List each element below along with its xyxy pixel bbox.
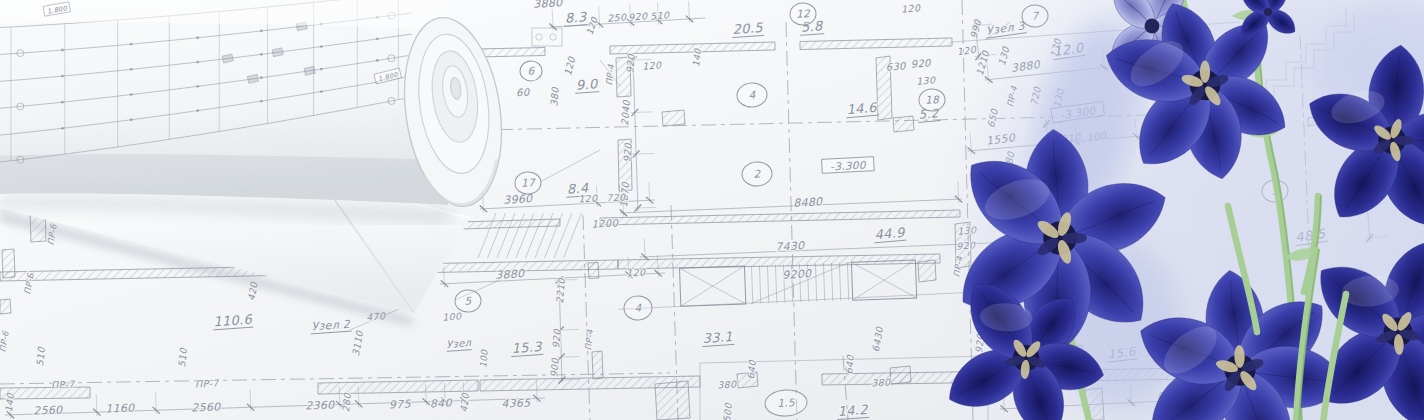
- svg-text:720: 720: [606, 191, 626, 203]
- dim-label: 975: [389, 398, 412, 412]
- svg-text:640: 640: [843, 354, 856, 375]
- svg-text:920: 920: [624, 53, 636, 73]
- svg-text:280: 280: [340, 392, 353, 413]
- dim-label: 510: [650, 9, 670, 21]
- dim-label: 640: [843, 354, 856, 375]
- svg-text:510: 510: [650, 9, 670, 21]
- dim-label: 920: [628, 10, 648, 22]
- dim-label: 7430: [775, 239, 806, 254]
- dim-label: 380: [717, 378, 737, 390]
- svg-text:2210: 2210: [554, 277, 567, 304]
- dim-label: ПР-7: [51, 378, 76, 390]
- svg-text:9200: 9200: [782, 267, 813, 282]
- svg-text:17: 17: [521, 176, 537, 189]
- svg-text:15.3: 15.3: [511, 339, 544, 356]
- dim-label: 3880: [533, 0, 564, 11]
- svg-text:14.2: 14.2: [837, 402, 869, 419]
- svg-text:920: 920: [628, 10, 648, 22]
- svg-text:33.1: 33.1: [702, 329, 733, 346]
- svg-text:900: 900: [548, 357, 560, 377]
- svg-text:100: 100: [478, 348, 489, 368]
- dim-label: 640: [745, 359, 758, 380]
- svg-text:ПР-4: ПР-4: [583, 328, 595, 350]
- svg-text:640: 640: [745, 359, 758, 380]
- dim-label: 2560: [33, 403, 63, 417]
- svg-text:3880: 3880: [495, 267, 526, 282]
- dim-label: 630: [885, 60, 907, 72]
- svg-text:7430: 7430: [775, 239, 806, 254]
- dim-label: 9200: [782, 267, 813, 282]
- blueprint-flowers-illustration: 38808.312025092051020.55.81209.060380120…: [0, 0, 1424, 420]
- rolled-blueprint: 1.8001.800: [0, 0, 513, 222]
- dim-label: 140: [3, 392, 16, 413]
- dim-label: 100: [478, 348, 489, 368]
- svg-text:2560: 2560: [191, 400, 221, 414]
- dim-label: 2360: [305, 398, 335, 412]
- dim-label: 1160: [105, 401, 135, 415]
- dim-label: 60: [516, 87, 531, 99]
- svg-text:2360: 2360: [305, 398, 335, 412]
- svg-text:120: 120: [626, 266, 646, 278]
- hero-banner: 38808.312025092051020.55.81209.060380120…: [0, 0, 1424, 420]
- svg-text:975: 975: [389, 398, 412, 412]
- svg-text:4365: 4365: [501, 396, 531, 410]
- svg-text:44.9: 44.9: [874, 225, 907, 243]
- dim-label: 380: [548, 86, 560, 106]
- dim-label: ПР-4: [583, 328, 595, 350]
- svg-text:60: 60: [516, 87, 531, 99]
- dim-label: 8.3: [563, 9, 588, 26]
- svg-text:20.5: 20.5: [732, 20, 764, 37]
- dim-label: 280: [340, 392, 353, 413]
- svg-text:420: 420: [458, 392, 471, 413]
- svg-text:Узел 2: Узел 2: [311, 318, 351, 334]
- svg-text:920: 920: [550, 328, 562, 348]
- svg-text:130: 130: [916, 74, 936, 86]
- svg-text:2040: 2040: [619, 99, 632, 126]
- svg-text:510: 510: [176, 347, 189, 368]
- dim-label: 44.9: [873, 225, 907, 243]
- svg-text:110.6: 110.6: [213, 312, 254, 330]
- dim-label: 500: [721, 402, 734, 420]
- svg-text:1200: 1200: [591, 217, 620, 229]
- svg-text:4: 4: [748, 88, 756, 100]
- svg-text:3880: 3880: [533, 0, 564, 11]
- svg-text:140: 140: [3, 392, 16, 413]
- svg-text:12: 12: [796, 7, 812, 20]
- dim-label: 140: [691, 47, 703, 67]
- svg-text:120: 120: [578, 192, 598, 204]
- dim-label: 14.2: [836, 402, 869, 420]
- svg-text:510: 510: [34, 346, 47, 367]
- svg-text:-3.300: -3.300: [830, 159, 867, 173]
- dim-label: 510: [176, 347, 189, 368]
- dim-label: 100: [442, 310, 462, 322]
- svg-text:380: 380: [717, 378, 737, 390]
- svg-text:920: 920: [910, 57, 932, 69]
- svg-text:14.6: 14.6: [846, 100, 879, 118]
- dim-label: 4365: [501, 396, 531, 410]
- svg-text:380: 380: [548, 86, 560, 106]
- dim-label: 2210: [554, 277, 567, 304]
- dim-label: 2560: [191, 400, 221, 414]
- dim-label: 720: [606, 191, 626, 203]
- svg-text:140: 140: [691, 47, 703, 67]
- svg-text:120: 120: [901, 2, 922, 15]
- svg-text:ПР-7: ПР-7: [51, 378, 76, 390]
- dim-label: 920: [621, 142, 633, 162]
- dim-label: ПР-7: [195, 377, 220, 389]
- svg-text:8.3: 8.3: [564, 9, 588, 26]
- dim-label: 3880: [495, 267, 526, 282]
- dim-label: 510: [34, 346, 47, 367]
- dim-label: 15.3: [510, 339, 544, 357]
- svg-text:120: 120: [642, 59, 662, 71]
- dim-label: 120: [626, 266, 646, 278]
- dim-label: 250: [607, 11, 627, 23]
- dim-label: 120: [901, 2, 922, 15]
- dim-label: 420: [458, 392, 471, 413]
- dim-label: 920: [550, 328, 562, 348]
- svg-text:2560: 2560: [33, 403, 63, 417]
- svg-text:840: 840: [430, 397, 453, 411]
- dim-label: 840: [430, 397, 453, 411]
- svg-text:920: 920: [621, 142, 633, 162]
- dim-label: 130: [916, 74, 936, 86]
- dim-label: 1200: [591, 217, 620, 229]
- dim-label: 900: [548, 357, 560, 377]
- dim-label: 33.1: [701, 329, 734, 347]
- dim-label: Узел 2: [310, 318, 352, 334]
- dim-label: 8480: [793, 195, 824, 210]
- svg-text:630: 630: [885, 60, 907, 72]
- dim-label: 20.5: [731, 20, 764, 38]
- svg-text:250: 250: [607, 11, 627, 23]
- svg-text:4: 4: [634, 301, 642, 313]
- dim-label: 14.6: [845, 100, 879, 118]
- svg-text:Узел: Узел: [446, 337, 472, 350]
- dim-label: 920: [624, 53, 636, 73]
- svg-text:9.0: 9.0: [575, 76, 599, 93]
- svg-text:380: 380: [871, 376, 891, 388]
- svg-text:100: 100: [442, 310, 462, 322]
- dim-label: 920: [910, 57, 932, 69]
- svg-text:500: 500: [721, 402, 734, 420]
- level-mark: -3.300: [822, 157, 875, 174]
- axis-bubble: 6: [519, 60, 542, 81]
- dim-label: 9.0: [574, 76, 599, 93]
- svg-text:8480: 8480: [793, 195, 824, 210]
- svg-text:ПР-7: ПР-7: [195, 377, 220, 389]
- svg-text:1160: 1160: [105, 401, 135, 415]
- dim-label: 2040: [619, 99, 632, 126]
- dim-label: 120: [578, 192, 598, 204]
- dim-label: 110.6: [212, 312, 254, 330]
- svg-text:1.5: 1.5: [777, 396, 796, 409]
- dim-label: 120: [642, 59, 662, 71]
- dim-label: 380: [871, 376, 891, 388]
